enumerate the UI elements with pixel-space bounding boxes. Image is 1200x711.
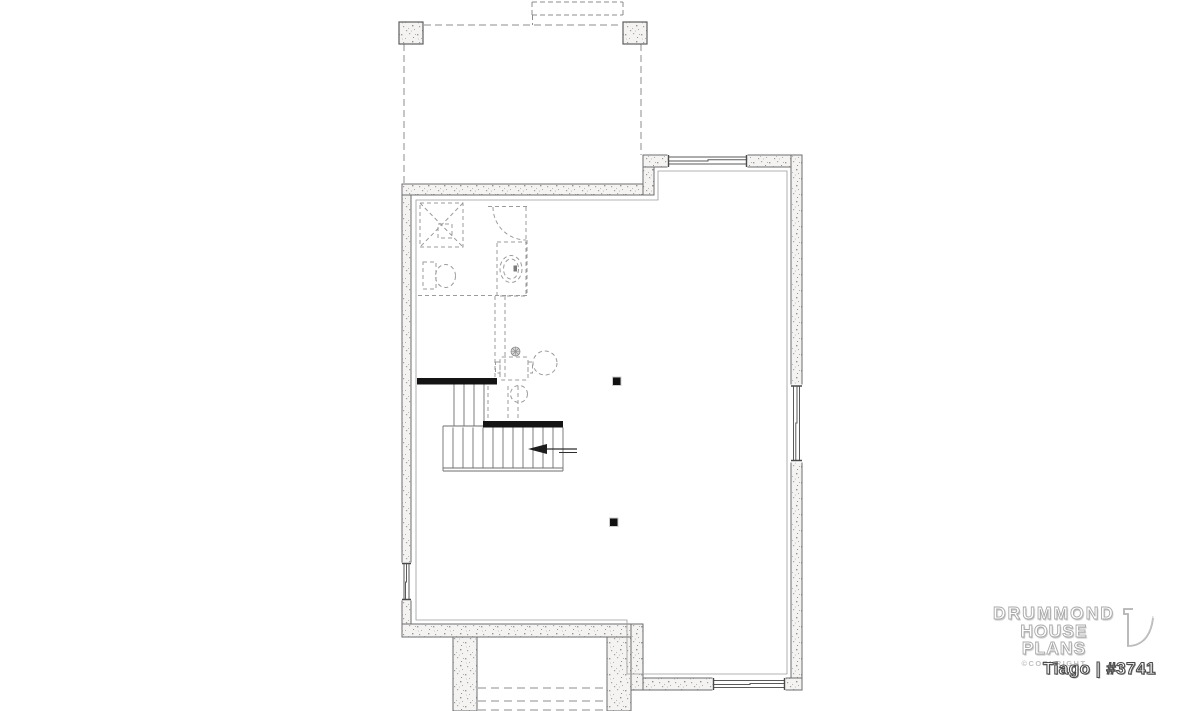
post-2 [610,518,619,527]
stair-header-lower [483,421,563,428]
window-left [401,563,412,601]
understair-partition [488,386,518,420]
window-top [668,154,748,168]
stair-upper-flight [454,385,484,427]
brand-name-line2: HOUSE PLANS [988,623,1120,658]
toilet [423,262,456,289]
entry-steps-dashed [532,2,623,25]
pump [511,386,528,403]
bathroom-door-swing [488,207,527,241]
foundation-walls [402,155,802,711]
window-bottom [713,677,786,691]
brand-logo: DRUMMOND HOUSE PLANS ©COPYRIGHT [988,605,1120,667]
structural-posts [610,377,622,527]
porch-pier-left [399,22,423,44]
plan-title: Tiago | #3741 [985,659,1156,679]
floor-drain [511,347,520,356]
floor-plan-page: DRUMMOND HOUSE PLANS ©COPYRIGHT Tiago | … [0,0,1200,711]
wall-step [631,624,643,690]
porch-pier-right [623,22,647,44]
footing-lines [416,171,787,674]
shower [420,203,463,247]
stair-header-upper [417,378,497,385]
vanity-sink [497,242,526,296]
wall-bottom-left [402,624,643,637]
wall-top-left [402,184,654,195]
laundry-tub [496,357,533,380]
stair-direction-arrow [528,444,577,454]
rear-stairwell-steps [478,688,606,710]
door-logo-icon [1119,606,1158,650]
brand-name-line1: DRUMMOND [988,605,1120,623]
staircase [417,378,577,471]
bathroom-partition [418,240,527,296]
post-1 [613,377,622,386]
porch-outline [399,2,647,184]
water-heater [533,351,557,375]
window-right [790,385,803,463]
wall-stairwell-left [453,637,477,711]
